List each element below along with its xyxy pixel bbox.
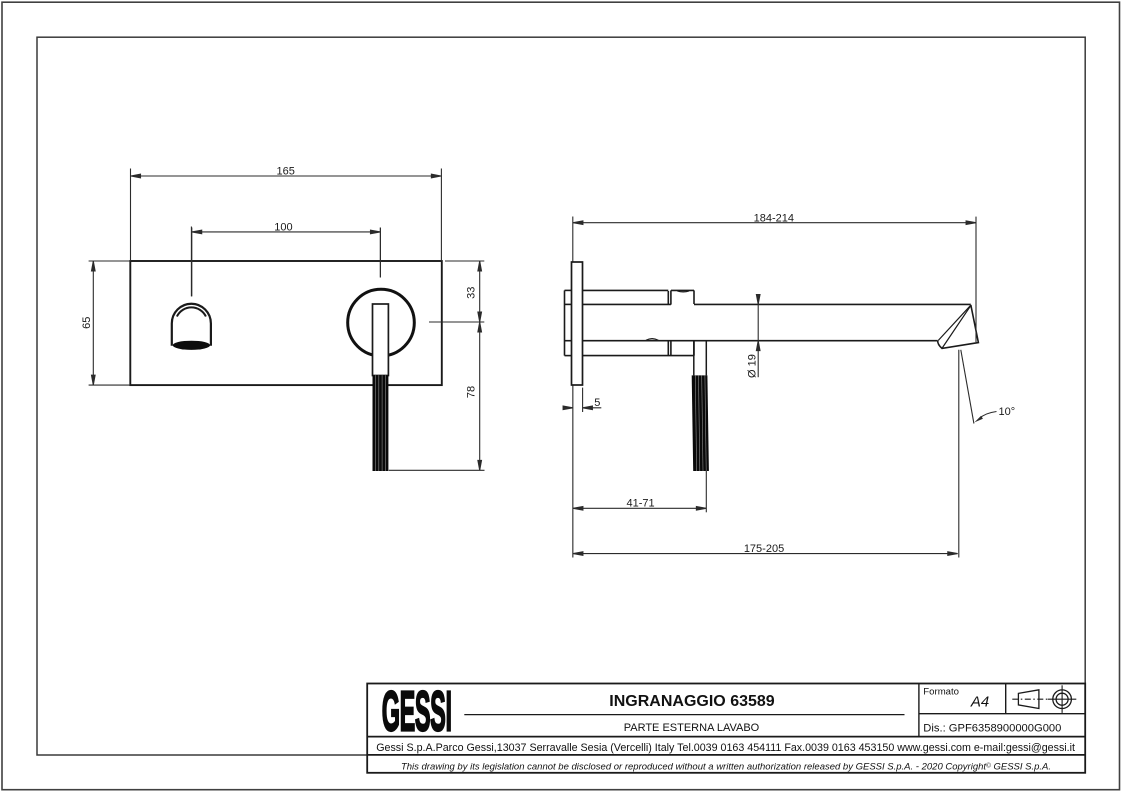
svg-text:41-71: 41-71: [627, 498, 655, 510]
svg-text:Dis.: GPF6358900000G000: Dis.: GPF6358900000G000: [923, 722, 1061, 734]
svg-text:Ø 19: Ø 19: [747, 354, 759, 378]
svg-text:100: 100: [274, 221, 292, 233]
svg-text:175-205: 175-205: [744, 543, 784, 555]
svg-text:This drawing by its legislatio: This drawing by its legislation cannot b…: [401, 761, 1051, 772]
svg-text:PARTE ESTERNA LAVABO: PARTE ESTERNA LAVABO: [624, 722, 760, 734]
svg-text:33: 33: [466, 287, 478, 299]
svg-text:78: 78: [466, 386, 478, 398]
svg-text:INGRANAGGIO 63589: INGRANAGGIO 63589: [609, 693, 774, 710]
svg-text:10°: 10°: [999, 406, 1016, 418]
svg-text:Formato: Formato: [923, 686, 959, 697]
svg-text:165: 165: [277, 166, 295, 178]
svg-text:Gessi S.p.A.Parco Gessi,13037: Gessi S.p.A.Parco Gessi,13037 Serravalle…: [376, 742, 1075, 754]
svg-text:65: 65: [81, 317, 93, 329]
svg-text:GESSI: GESSI: [382, 681, 452, 744]
svg-text:184-214: 184-214: [754, 212, 794, 224]
svg-text:5: 5: [594, 397, 600, 409]
svg-text:A4: A4: [970, 693, 989, 710]
